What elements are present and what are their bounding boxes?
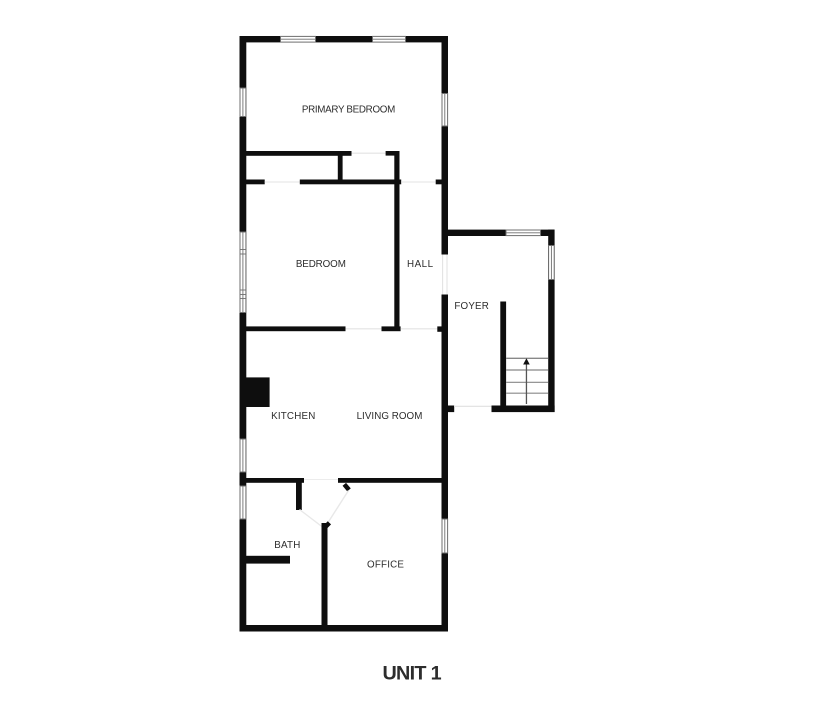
svg-text:HALL: HALL [407,259,434,270]
svg-text:KITCHEN: KITCHEN [271,411,315,422]
svg-text:OFFICE: OFFICE [367,560,404,571]
svg-text:BEDROOM: BEDROOM [296,259,346,270]
svg-text:PRIMARY BEDROOM: PRIMARY BEDROOM [302,104,395,115]
svg-text:FOYER: FOYER [454,301,489,312]
svg-text:LIVING ROOM: LIVING ROOM [357,411,423,422]
svg-text:UNIT 1: UNIT 1 [382,663,441,685]
svg-text:BATH: BATH [274,540,300,551]
